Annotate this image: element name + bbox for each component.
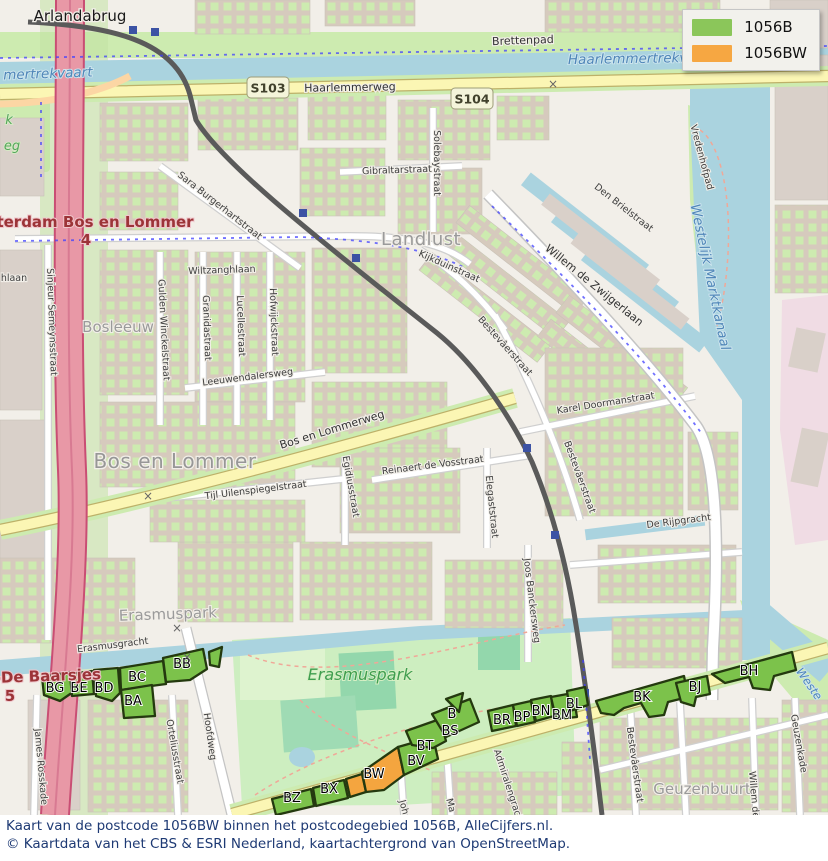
area-label-BS: BS — [442, 724, 459, 739]
area-label-BH: BH — [740, 664, 759, 679]
map-label: × — [172, 621, 182, 635]
svg-text:S103: S103 — [250, 81, 285, 96]
map-label: Haarlemmerweg — [304, 80, 396, 95]
map-label: Solebaystraat — [431, 130, 442, 196]
map-label: Wiltzanghlaan — [188, 264, 256, 277]
map-svg: BGBEBDBCBABBBZBXBWBVBTBSBBRBPBNBMBLBKBJB… — [0, 0, 828, 815]
map-label: Bosleeuw — [82, 318, 154, 336]
area-label-BC: BC — [128, 670, 146, 685]
road-shield-S104: S104 — [451, 88, 493, 109]
area-label-BN: BN — [532, 704, 551, 719]
sports-field-2 — [280, 695, 358, 752]
area-label-BR: BR — [493, 713, 511, 728]
legend-swatch-1056BW — [692, 45, 732, 62]
map-label: Geuzenbuurt — [653, 780, 751, 798]
area-label-BX: BX — [320, 782, 338, 797]
map-label: 4 — [81, 231, 91, 249]
map-label: Brettenpad — [492, 33, 554, 48]
map-label: -De Baarsjes — [0, 665, 101, 687]
map-label: Granidastraat — [200, 295, 213, 361]
map-label: k — [5, 113, 13, 128]
map-label: eg — [4, 139, 20, 154]
map-label: Lucellestraat — [234, 295, 247, 357]
legend-label: 1056B — [744, 18, 792, 36]
map-label: Erasmuspark — [118, 603, 217, 624]
map-label: terdam Bos en Lommer — [0, 213, 194, 231]
map-label: × — [182, 650, 192, 664]
svg-text:S104: S104 — [454, 92, 489, 107]
map-caption: Kaart van de postcode 1056BW binnen het … — [0, 815, 828, 861]
map-label: mertrekvaart — [3, 64, 94, 83]
legend-row-1056B: 1056B — [692, 18, 807, 36]
map-label: 5 — [5, 687, 15, 705]
map-label: Arlandabrug — [34, 7, 127, 25]
map-label: Landlust — [381, 229, 461, 250]
area-label-BL: BL — [566, 697, 583, 712]
map-label: hlaan — [1, 273, 27, 284]
area-label-B: B — [448, 707, 457, 722]
area-label-BA: BA — [124, 694, 142, 709]
legend-row-1056BW: 1056BW — [692, 44, 807, 62]
legend-label: 1056BW — [744, 44, 807, 62]
map-label: Bos en Lommer — [93, 449, 256, 473]
map-label: Erasmuspark — [308, 665, 413, 684]
road-shield-S103: S103 — [247, 77, 289, 98]
map-label: × — [143, 489, 153, 503]
area-label-BJ: BJ — [689, 680, 702, 695]
map-label: × — [548, 77, 558, 91]
page: BGBEBDBCBABBBZBXBWBVBTBSBBRBPBNBMBLBKBJB… — [0, 0, 828, 861]
caption-line-2: © Kaartdata van het CBS & ESRI Nederland… — [6, 836, 822, 854]
area-label-BT: BT — [417, 739, 434, 754]
area-label-BZ: BZ — [283, 791, 301, 806]
caption-line-1: Kaart van de postcode 1056BW binnen het … — [6, 818, 822, 836]
map-canvas[interactable]: BGBEBDBCBABBBZBXBWBVBTBSBBRBPBNBMBLBKBJB… — [0, 0, 828, 815]
area-label-BP: BP — [514, 710, 531, 725]
area-label-BV: BV — [407, 754, 425, 769]
map-legend: 1056B1056BW — [682, 9, 820, 71]
legend-swatch-1056B — [692, 19, 732, 36]
area-label-BK: BK — [633, 690, 651, 705]
area-label-BW: BW — [363, 767, 384, 782]
